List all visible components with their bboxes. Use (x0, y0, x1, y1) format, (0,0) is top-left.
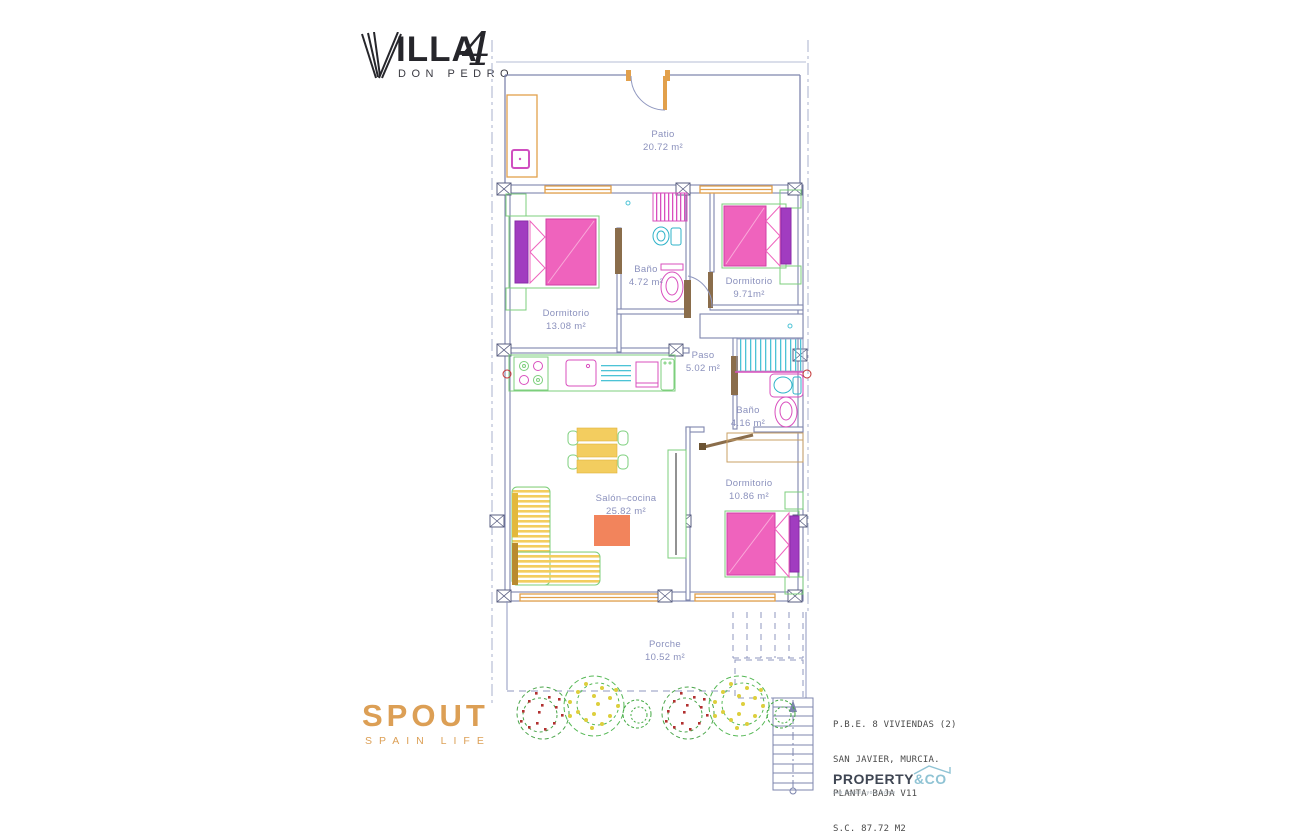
room-area-bano-1: 4.72 m² (629, 277, 663, 288)
room-area-patio: 20.72 m² (643, 142, 683, 153)
sofa (512, 487, 600, 585)
stairs (773, 698, 813, 794)
room-label-salon: Salón–cocina (596, 493, 657, 504)
room-label-patio: Patio (651, 129, 674, 140)
property-logo: PROPERTY&CO sun houses your home (833, 771, 947, 796)
room-label-bano-2: Baño (736, 405, 759, 416)
room-area-porche: 10.52 m² (645, 652, 685, 663)
floorplan-drawing: Patio 20.72 m² Dormitorio 13.08 m² Baño … (0, 0, 1290, 840)
shrub-icon (662, 687, 714, 739)
spout-brand: SPOUT (362, 698, 491, 734)
floorplan-page: ILLA 4 DON PEDRO (0, 0, 1290, 840)
spout-tagline: SPAIN LIFE (365, 735, 491, 747)
property-brand: PROPERTY (833, 771, 914, 787)
shrub-icon (767, 700, 795, 728)
room-label-dormitorio-3: Dormitorio (726, 478, 773, 489)
room-area-dormitorio-2: 9.71m² (733, 289, 764, 300)
shrub-icon (623, 700, 651, 728)
tv-cabinet (668, 450, 686, 558)
dining-table (568, 428, 628, 473)
shrub-icon (709, 676, 769, 736)
shrub-icon (564, 676, 624, 736)
property-tagline: sun houses your home (833, 790, 947, 796)
room-label-dormitorio-1: Dormitorio (543, 308, 590, 319)
garden-shrubs (517, 676, 795, 739)
kitchen-counter (503, 355, 675, 391)
rug (594, 515, 630, 546)
room-area-bano-2: 4.16 m² (731, 418, 765, 429)
patio-entry-door (626, 70, 670, 110)
room-label-dormitorio-2: Dormitorio (726, 276, 773, 287)
room-label-porche: Porche (649, 639, 681, 650)
roof-icon (913, 764, 953, 776)
room-label-paso: Paso (692, 350, 715, 361)
room-area-salon: 25.82 m² (606, 506, 646, 517)
spout-logo: SPOUT SPAIN LIFE (362, 698, 491, 747)
room-area-dormitorio-1: 13.08 m² (546, 321, 586, 332)
bed-dormitorio-3 (725, 492, 803, 594)
room-label-bano-1: Baño (634, 264, 657, 275)
project-info-line: S.C. 87.72 M2 (833, 824, 957, 836)
project-info-line: P.B.E. 8 VIVIENDAS (2) (833, 720, 957, 732)
room-area-paso: 5.02 m² (686, 363, 720, 374)
bed-dormitorio-2 (722, 190, 801, 284)
shrub-icon (517, 687, 569, 739)
bed-dormitorio-1 (506, 194, 599, 310)
room-area-dormitorio-3: 10.86 m² (729, 491, 769, 502)
patio-storage (507, 95, 537, 177)
stairs-up-arrow-icon (789, 700, 797, 712)
